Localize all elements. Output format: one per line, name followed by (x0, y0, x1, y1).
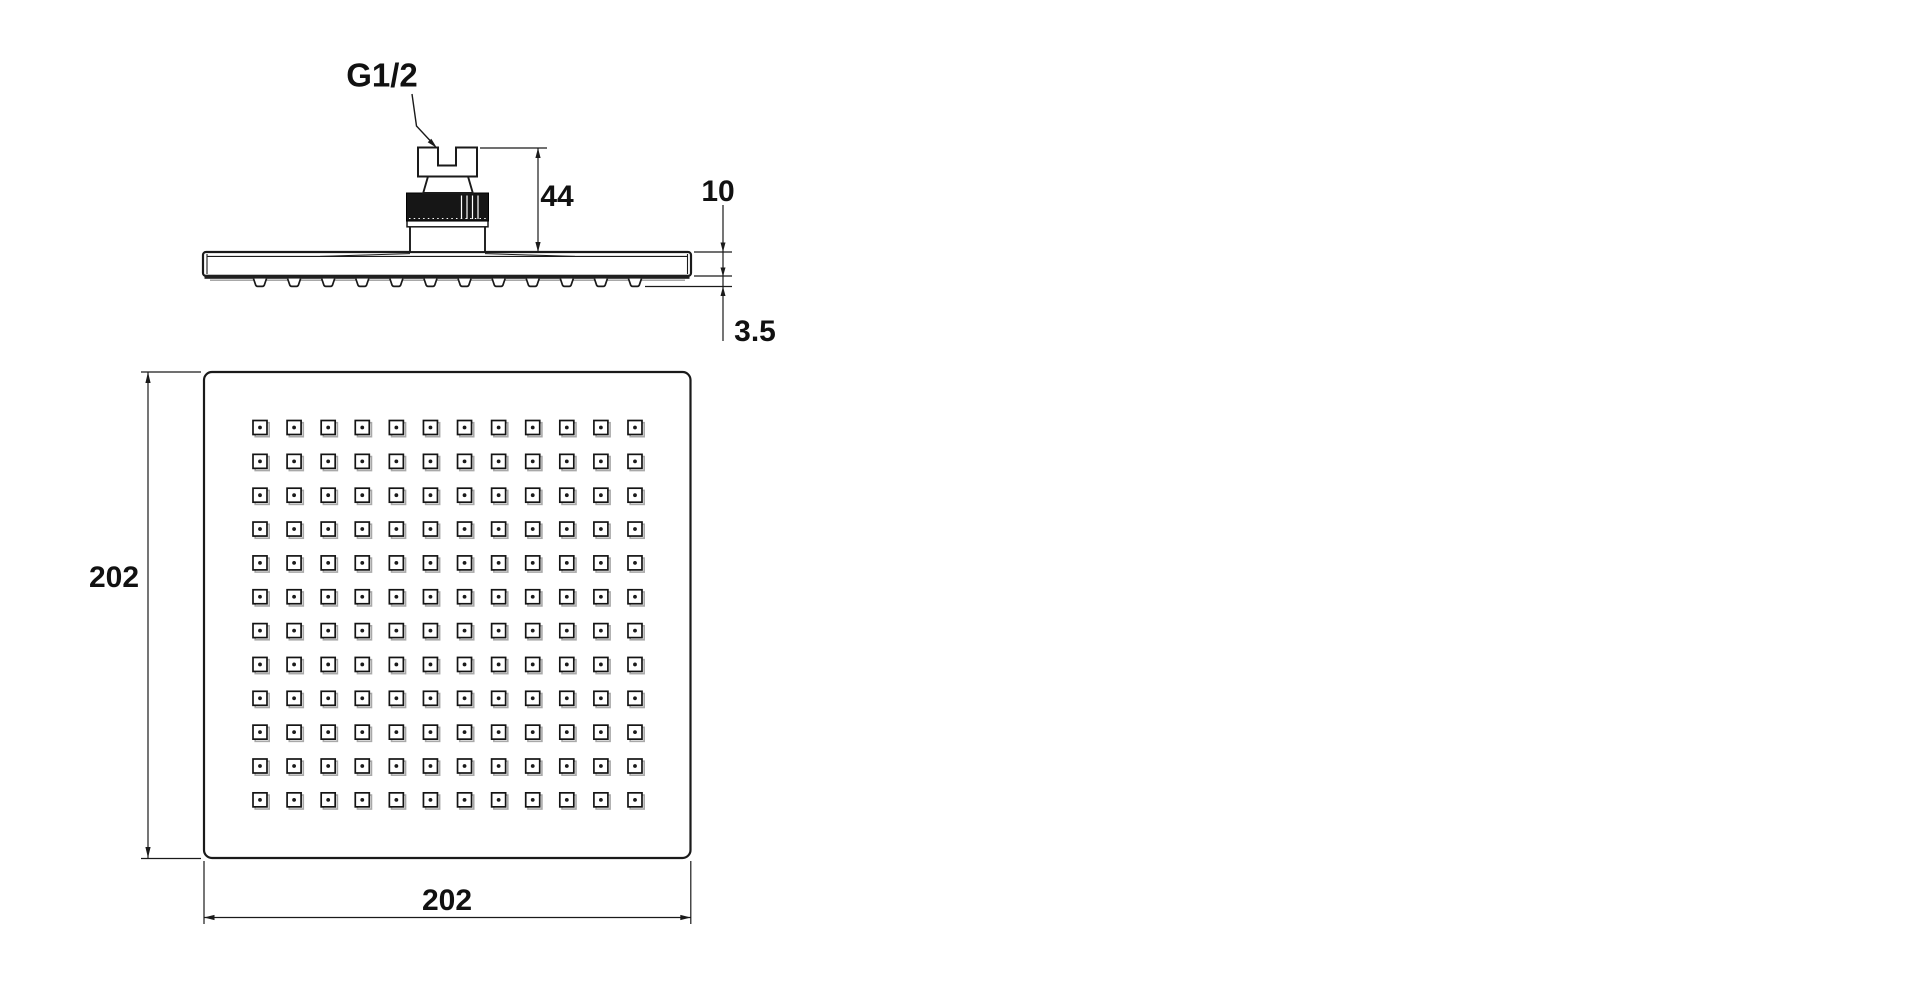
side-plate-bottom-rim (205, 275, 690, 279)
nozzle-cell (389, 590, 405, 606)
nozzle-cell (560, 725, 576, 741)
nozzle-cell (458, 759, 474, 775)
nozzle-cell (594, 691, 610, 707)
nozzle-cell (321, 657, 337, 673)
nozzle-cell (594, 759, 610, 775)
face-view (141, 372, 691, 924)
nozzle-cell (389, 691, 405, 707)
nozzle-cell (594, 421, 610, 437)
nozzle-cell (560, 691, 576, 707)
dim44-arrow-down (535, 242, 540, 252)
nozzle-cell (628, 657, 644, 673)
dim202l-arrow-up (145, 372, 150, 383)
nozzle-cell (628, 488, 644, 504)
nozzle-cell (526, 624, 542, 640)
nozzle-cell (594, 590, 610, 606)
nozzle-cell (628, 624, 644, 640)
side-plate-outline (203, 252, 691, 276)
dim202l-arrow-down (145, 847, 150, 858)
nozzle-cell (321, 624, 337, 640)
nozzle-cell (560, 522, 576, 538)
nozzle-cell (492, 556, 508, 572)
nozzle-cell (492, 590, 508, 606)
nozzle-cell (628, 556, 644, 572)
nozzle-cell (321, 725, 337, 741)
nozzle-cell (355, 590, 371, 606)
nozzle-cell (321, 759, 337, 775)
nozzle-cell (560, 657, 576, 673)
nozzle-cell (560, 556, 576, 572)
nozzle-cell (526, 759, 542, 775)
nozzle-cell (560, 759, 576, 775)
nozzle-cell (389, 725, 405, 741)
nozzle-cell (389, 454, 405, 470)
nozzle-cell (321, 691, 337, 707)
nozzle-cell (492, 657, 508, 673)
side-nozzle (288, 279, 301, 287)
nozzle-cell (423, 522, 439, 538)
nozzle-cell (389, 793, 405, 809)
nozzle-cell (287, 691, 303, 707)
nozzle-cell (526, 454, 542, 470)
face-plate-outline (204, 372, 691, 858)
nozzle-cell (253, 793, 269, 809)
nozzle-cell (628, 691, 644, 707)
side-nozzle (356, 279, 369, 287)
nozzle-cell (458, 793, 474, 809)
nozzle-cell (423, 488, 439, 504)
nozzle-cell (423, 793, 439, 809)
nozzle-cell (458, 657, 474, 673)
nozzle-cell (389, 759, 405, 775)
nozzle-cell (321, 488, 337, 504)
nozzle-cell (321, 556, 337, 572)
nozzle-cell (253, 725, 269, 741)
nozzle-cell (253, 624, 269, 640)
side-nozzle (322, 279, 335, 287)
side-nozzle (628, 279, 641, 287)
nozzle-cell (423, 691, 439, 707)
nozzle-cell (287, 454, 303, 470)
nozzle-cell (389, 488, 405, 504)
nozzle-cell (458, 454, 474, 470)
nozzle-cell (628, 793, 644, 809)
nozzle-cell (287, 488, 303, 504)
nozzle-cell (355, 691, 371, 707)
nozzle-cell (526, 793, 542, 809)
nozzle-cell (526, 421, 542, 437)
nozzle-cell (560, 421, 576, 437)
connector-neck (423, 177, 473, 194)
side-nozzle (254, 279, 267, 287)
nozzle-cell (458, 556, 474, 572)
thread-leader-line (412, 94, 430, 141)
nozzle-cell (423, 657, 439, 673)
nozzle-cell (492, 793, 508, 809)
dim35-arrow-up (721, 287, 726, 297)
nozzle-cell (594, 624, 610, 640)
nozzle-cell (492, 759, 508, 775)
nozzle-cell (526, 590, 542, 606)
side-nozzle (526, 279, 539, 287)
drawing-linework (0, 0, 1920, 995)
nozzle-cell (628, 725, 644, 741)
side-nozzle (390, 279, 403, 287)
nozzle-cell (389, 421, 405, 437)
nozzle-cell (287, 759, 303, 775)
connector-thread-nut (418, 148, 477, 177)
nozzle-cell (253, 590, 269, 606)
nozzle-cell (389, 522, 405, 538)
nozzle-cell (253, 657, 269, 673)
face-height-label: 202 (89, 563, 139, 593)
nozzle-cell (594, 556, 610, 572)
nozzle-cell (423, 421, 439, 437)
nozzle-cell (594, 657, 610, 673)
side-nozzle (458, 279, 471, 287)
nozzle-cell (526, 691, 542, 707)
nozzle-cell (355, 556, 371, 572)
nozzle-cell (560, 454, 576, 470)
dim202b-arrow-right (680, 915, 691, 920)
nozzle-protrusion-label: 3.5 (734, 317, 776, 347)
nozzle-cell (253, 691, 269, 707)
nozzle-cell (458, 590, 474, 606)
nozzle-cell (253, 522, 269, 538)
nozzle-cell (458, 691, 474, 707)
nozzle-cell (458, 522, 474, 538)
nozzle-cell (423, 725, 439, 741)
nozzle-cell (355, 488, 371, 504)
nozzle-cell (492, 488, 508, 504)
nozzle-cell (355, 725, 371, 741)
side-nozzle (560, 279, 573, 287)
nozzle-cell (560, 793, 576, 809)
nozzle-cell (526, 488, 542, 504)
nozzle-cell (560, 590, 576, 606)
nozzle-cell (321, 793, 337, 809)
nozzle-cell (628, 454, 644, 470)
nozzle-cell (492, 454, 508, 470)
nozzle-cell (253, 488, 269, 504)
dim202b-arrow-left (204, 915, 215, 920)
nozzle-cell (492, 624, 508, 640)
dimension-202-left (141, 372, 201, 859)
nozzle-cell (321, 522, 337, 538)
nozzle-cell (423, 454, 439, 470)
technical-drawing: G1/2 44 10 3.5 202 202 (0, 0, 1920, 995)
nozzle-cell (355, 624, 371, 640)
nozzle-cell (253, 556, 269, 572)
dimension-44 (480, 148, 547, 252)
nozzle-cell (389, 624, 405, 640)
nozzle-cell (526, 556, 542, 572)
nozzle-cell (594, 793, 610, 809)
side-nozzle (492, 279, 505, 287)
nozzle-cell (594, 725, 610, 741)
nozzle-cell (321, 590, 337, 606)
nozzle-cell (253, 759, 269, 775)
nozzle-cell (560, 624, 576, 640)
connector-knurled-ring (407, 193, 489, 221)
nozzle-cell (287, 590, 303, 606)
nozzle-cell (355, 421, 371, 437)
side-nozzle (594, 279, 607, 287)
nozzle-cell (458, 624, 474, 640)
nozzle-cell (287, 725, 303, 741)
nozzle-cell (287, 421, 303, 437)
nozzle-cell (355, 793, 371, 809)
nozzle-cell (253, 421, 269, 437)
dim44-arrow-up (535, 148, 540, 158)
nozzle-cell (355, 657, 371, 673)
nozzle-cell (355, 454, 371, 470)
nozzle-cell (594, 454, 610, 470)
nozzle-cell (253, 454, 269, 470)
nozzle-cell (628, 421, 644, 437)
nozzle-cell (492, 691, 508, 707)
nozzle-cell (458, 421, 474, 437)
nozzle-cell (526, 725, 542, 741)
thread-leader (412, 94, 437, 148)
nozzle-cell (321, 421, 337, 437)
nozzle-cell (628, 759, 644, 775)
thread-size-label: G1/2 (346, 59, 418, 92)
nozzle-cell (492, 421, 508, 437)
nozzle-cell (287, 793, 303, 809)
nozzle-cell (628, 522, 644, 538)
nozzle-cell (423, 590, 439, 606)
connector-height-label: 44 (540, 182, 573, 212)
nozzle-cell (458, 488, 474, 504)
nozzle-cell (492, 725, 508, 741)
nozzle-cell (423, 624, 439, 640)
nozzle-cell (526, 522, 542, 538)
nozzle-cell (594, 488, 610, 504)
nozzle-cell (287, 522, 303, 538)
nozzle-cell (492, 522, 508, 538)
nozzle-cell (389, 556, 405, 572)
dim10-arrow-down (721, 243, 726, 253)
face-width-label: 202 (422, 886, 472, 916)
nozzle-cell (287, 657, 303, 673)
nozzle-cell (355, 759, 371, 775)
nozzle-cell (560, 488, 576, 504)
nozzle-cell (321, 454, 337, 470)
dim35-arrow-down (721, 268, 726, 277)
nozzle-cell (287, 556, 303, 572)
connector-lower-cylinder (410, 227, 485, 253)
nozzle-cell (355, 522, 371, 538)
nozzle-cell (287, 624, 303, 640)
plate-thickness-label: 10 (701, 177, 734, 207)
nozzle-cell (594, 522, 610, 538)
nozzle-cell (526, 657, 542, 673)
side-nozzle (424, 279, 437, 287)
nozzle-cell (423, 556, 439, 572)
connector-joint-band (407, 221, 488, 227)
side-view (203, 94, 732, 341)
nozzle-cell (423, 759, 439, 775)
nozzle-cell (628, 590, 644, 606)
nozzle-cell (389, 657, 405, 673)
nozzle-cell (458, 725, 474, 741)
